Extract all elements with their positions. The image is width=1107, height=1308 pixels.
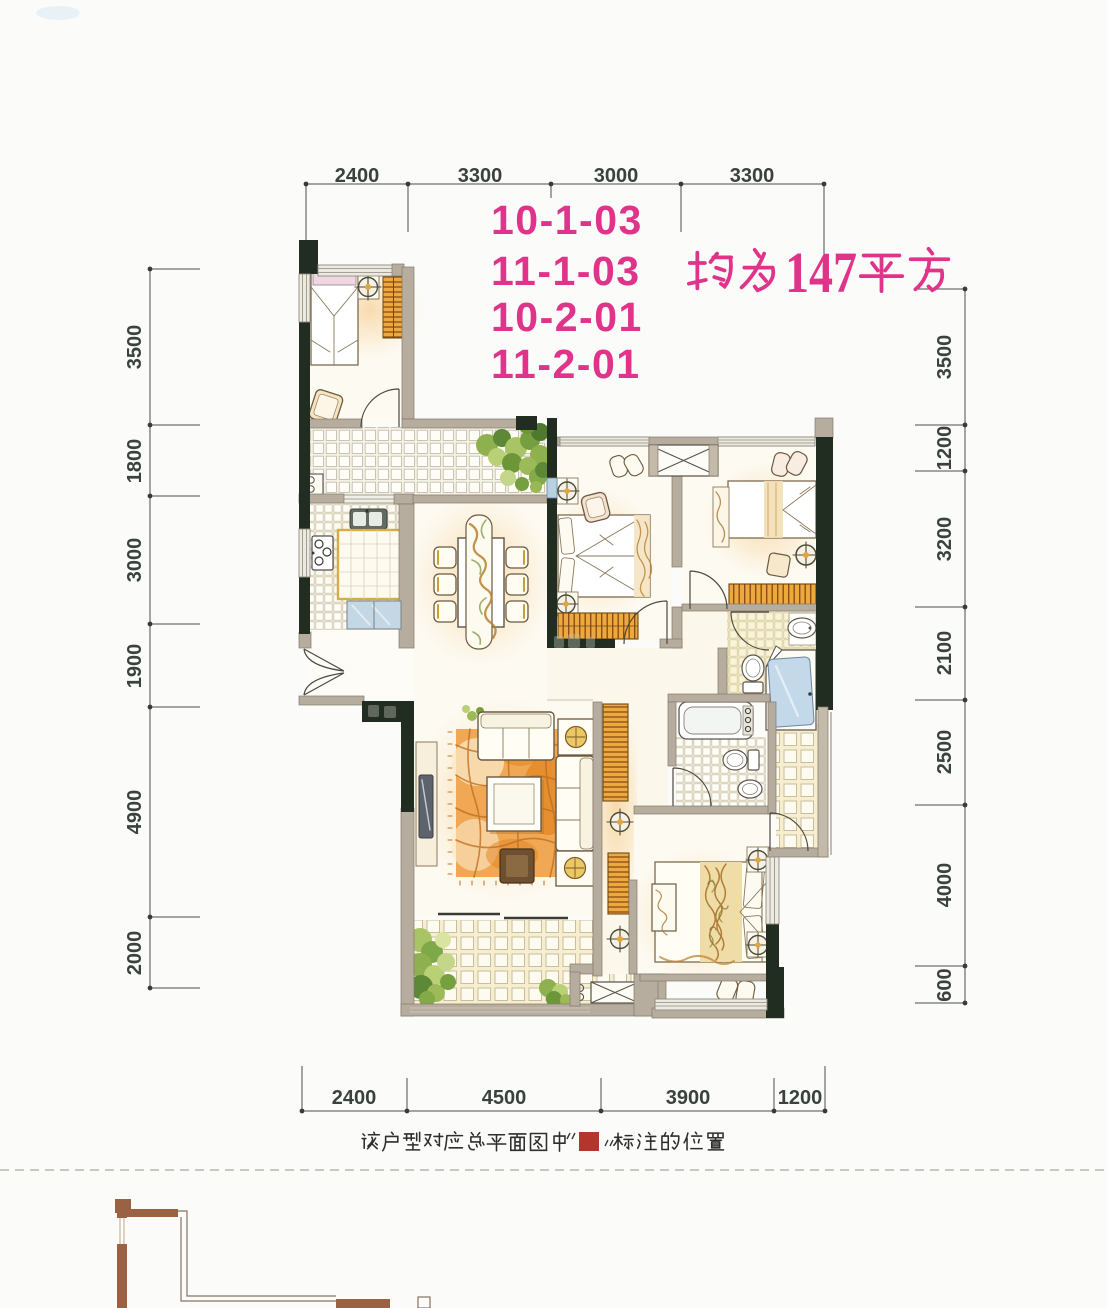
svg-text:2100: 2100 [934, 631, 956, 676]
svg-text:4900: 4900 [124, 790, 146, 835]
svg-text:3900: 3900 [666, 1087, 711, 1109]
svg-text:10-1-03: 10-1-03 [491, 197, 643, 243]
svg-text:600: 600 [934, 968, 956, 1001]
svg-text:11-2-01: 11-2-01 [491, 341, 641, 387]
svg-text:147: 147 [785, 240, 857, 305]
svg-text:3500: 3500 [124, 325, 146, 370]
svg-text:2000: 2000 [124, 931, 146, 976]
svg-text:1800: 1800 [124, 439, 146, 484]
svg-text:4000: 4000 [934, 863, 956, 908]
svg-text:3200: 3200 [934, 517, 956, 562]
svg-text:1900: 1900 [124, 644, 146, 689]
svg-text:2500: 2500 [934, 730, 956, 775]
svg-text:3000: 3000 [594, 165, 639, 187]
svg-text:2400: 2400 [335, 165, 380, 187]
svg-text:3000: 3000 [124, 538, 146, 583]
svg-text:10-2-01: 10-2-01 [491, 294, 643, 340]
svg-text:11-1-03: 11-1-03 [491, 248, 641, 294]
svg-text:4500: 4500 [482, 1087, 527, 1109]
svg-text:1200: 1200 [778, 1087, 823, 1109]
svg-text:3300: 3300 [458, 165, 503, 187]
svg-text:3500: 3500 [934, 335, 956, 380]
svg-text:2400: 2400 [332, 1087, 377, 1109]
svg-text:1200: 1200 [934, 426, 956, 471]
svg-text:3300: 3300 [730, 165, 775, 187]
